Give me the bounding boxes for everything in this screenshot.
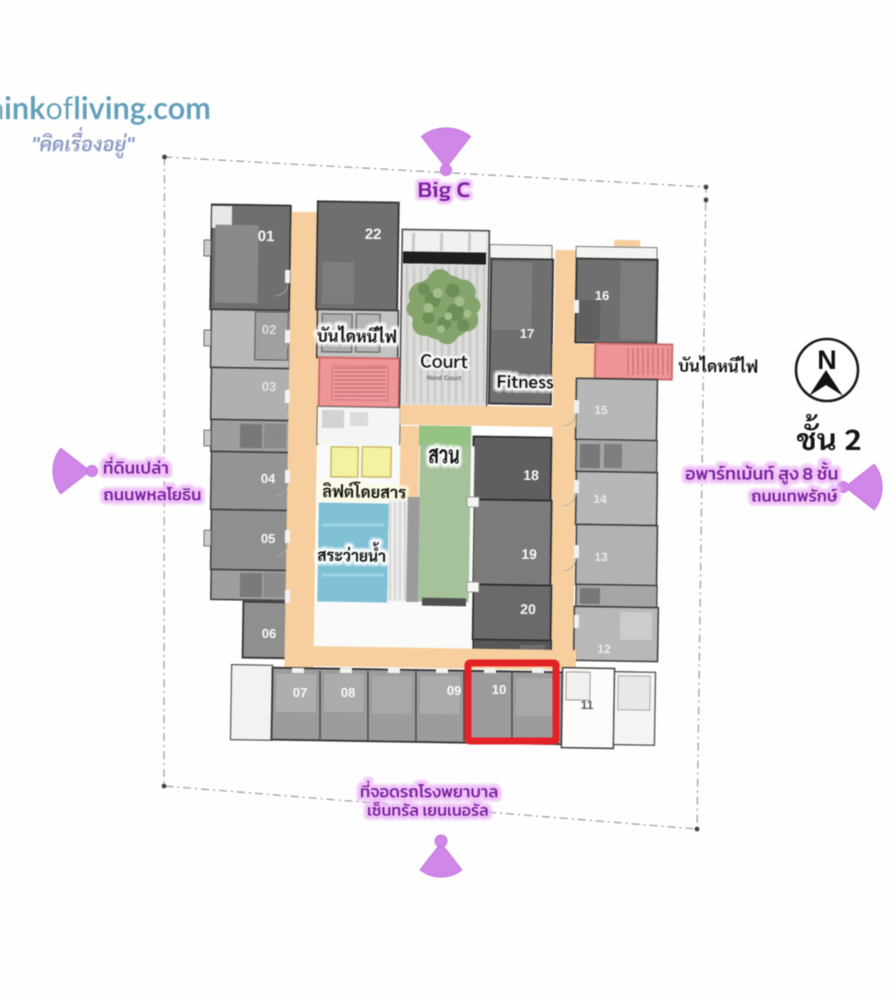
svg-text:10: 10	[492, 682, 507, 697]
svg-text:06: 06	[262, 626, 277, 641]
svg-text:09: 09	[447, 683, 462, 698]
svg-text:17: 17	[520, 326, 535, 341]
svg-text:13: 13	[594, 550, 608, 564]
svg-text:22: 22	[365, 226, 382, 243]
svg-text:05: 05	[261, 531, 276, 546]
svg-text:08: 08	[341, 685, 356, 700]
svg-text:15: 15	[594, 403, 608, 417]
svg-text:04: 04	[261, 471, 276, 486]
svg-text:07: 07	[293, 685, 308, 700]
svg-text:N: N	[817, 345, 837, 375]
svg-text:20: 20	[520, 601, 536, 617]
svg-text:14: 14	[593, 492, 607, 506]
svg-text:19: 19	[521, 546, 537, 562]
svg-text:02: 02	[262, 322, 277, 337]
svg-text:12: 12	[597, 642, 611, 656]
svg-text:18: 18	[523, 467, 539, 483]
svg-text:11: 11	[581, 698, 594, 712]
svg-text:Nord Court: Nord Court	[427, 375, 462, 383]
svg-text:01: 01	[258, 228, 275, 245]
svg-text:16: 16	[595, 288, 610, 303]
svg-text:03: 03	[262, 379, 277, 394]
